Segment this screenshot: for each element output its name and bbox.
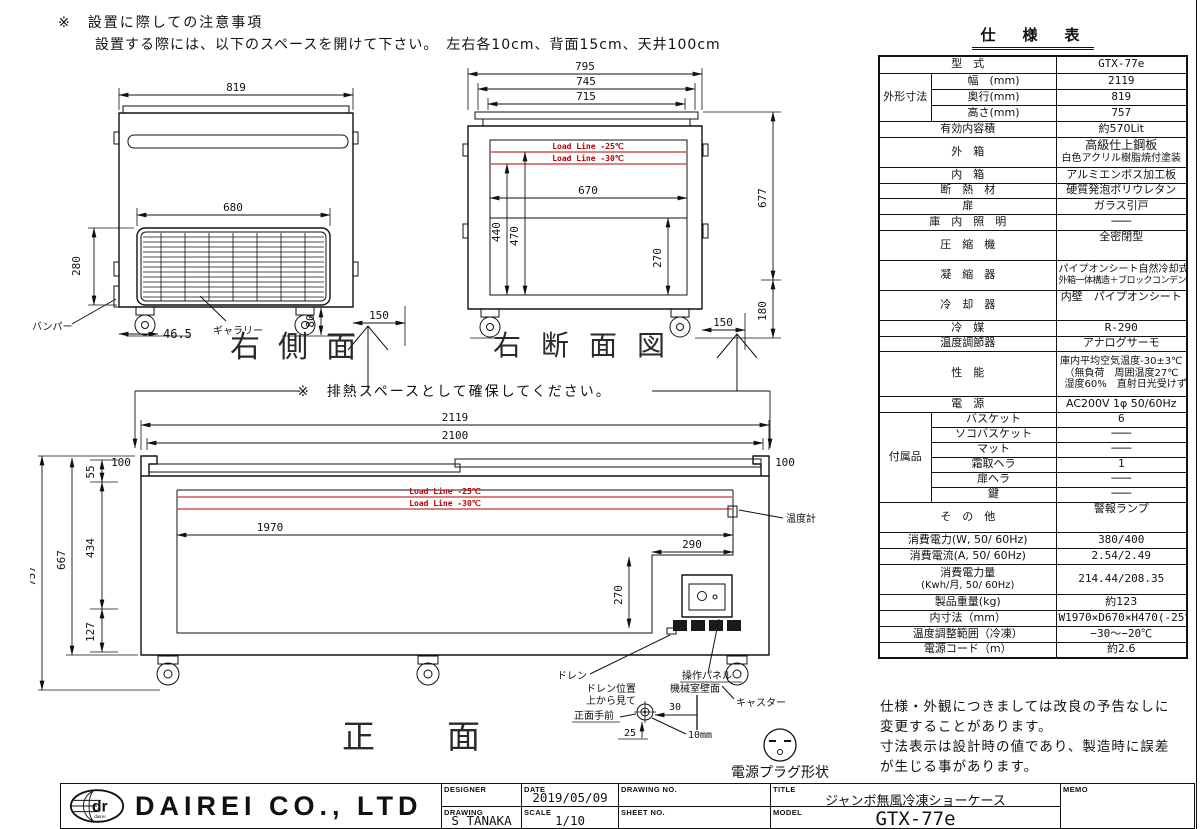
machine-wall-label: 機械室壁面 — [670, 682, 720, 695]
dim-670-label: 670 — [578, 184, 598, 197]
title-value: ジャンボ無風冷凍ショーケース — [771, 790, 1060, 806]
sheet-no-cell: SHEET NO. — [618, 806, 770, 828]
spec-table-title: 仕 様 表 — [972, 24, 1093, 50]
spec-watt-value: 380/400 — [1056, 532, 1187, 548]
spec-weight-value: 約123 — [1056, 594, 1187, 610]
dim-757-label: 757 — [30, 566, 38, 586]
drain-position-detail: ドレン位置 上から見て 正面手前 機械室壁面 30 25 10mm — [572, 682, 720, 741]
dim-1970-label: 1970 — [257, 521, 284, 534]
spec-accessories-label: 付属品 — [879, 412, 931, 502]
spec-weight-label: 製品重量(kg) — [879, 594, 1056, 610]
drawing-cell: DRAWINGS TANAKA — [441, 806, 521, 828]
dim-434-label: 434 — [84, 538, 97, 558]
dim-55-label: 55 — [84, 465, 97, 478]
model-value: GTX-77e — [771, 808, 1060, 828]
control-panel — [673, 575, 741, 631]
dim-10mm-label: 10mm — [688, 730, 712, 741]
dim-270-front-label: 270 — [612, 585, 625, 605]
installation-note-title: ※ 設置に際しての注意事項 — [58, 12, 263, 32]
load-line-30-label: Load Line -30℃ — [552, 153, 624, 163]
spec-capacity-value: 約570Lit — [1056, 121, 1187, 137]
date-label: DATE — [524, 785, 545, 794]
dim-440-label: 440 — [490, 222, 503, 242]
spec-inner-dims-label: 内寸法（mm） — [879, 610, 1056, 626]
dim-150-section-label: 150 — [713, 316, 733, 329]
disclaimer-line1: 仕様・外観につきましては改良の予告なしに — [880, 697, 1200, 717]
dim-150-rear-label: 150 — [369, 309, 389, 322]
spec-other-label: そ の 他 — [879, 502, 1056, 532]
memo-cell: MEMO — [1060, 784, 1194, 828]
spec-thermostat-value: アナログサーモ — [1056, 336, 1187, 351]
sheet-no-label: SHEET NO. — [621, 808, 665, 817]
spec-compressor-value: 全密閉型 — [1056, 230, 1187, 260]
spec-width-label: 幅 (mm) — [931, 73, 1056, 89]
dim-2100-label: 2100 — [442, 429, 469, 442]
title-label: TITLE — [773, 785, 796, 794]
dim-290-label: 290 — [682, 538, 702, 551]
spec-key-label: 鍵 — [931, 487, 1056, 502]
spec-cord-label: 電源コード（m） — [879, 642, 1056, 658]
dim-100-left-label: 100 — [111, 456, 131, 469]
dim-25-label: 25 — [624, 728, 636, 739]
spec-mat-value: ─── — [1056, 442, 1187, 457]
caster-label: キャスター — [736, 697, 786, 709]
dim-2119-label: 2119 — [442, 411, 469, 424]
spec-light-label: 庫 内 照 明 — [879, 214, 1056, 230]
dim-819-label: 819 — [226, 81, 246, 94]
drain-pos-line3: 正面手前 — [574, 709, 614, 722]
power-plug-shape: 電源プラグ形状 — [731, 729, 829, 781]
spec-table-area: 仕 様 表 型 式GTX-77e 外形寸法幅 (mm)2119 奥行(mm)81… — [878, 24, 1188, 659]
load-line-25-label: Load Line -25℃ — [552, 141, 624, 151]
dim-680-label: 680 — [223, 201, 243, 214]
spec-dims-label: 外形寸法 — [879, 73, 931, 121]
spec-thermostat-label: 温度調節器 — [879, 336, 1056, 351]
designer-cell: DESIGNER — [441, 784, 521, 806]
spec-compressor-label: 圧 縮 機 — [879, 230, 1056, 260]
dim-745-label: 745 — [576, 75, 596, 88]
spec-insulation-label: 断 熱 材 — [879, 183, 1056, 198]
side-view-callouts: バンパー ギャラリー — [32, 296, 263, 337]
spec-height-label: 高さ(mm) — [931, 105, 1056, 121]
spec-kwh-value: 214.44/208.35 — [1056, 564, 1187, 594]
dim-677-label: 677 — [756, 188, 769, 208]
spec-door-label: 扉 — [879, 198, 1056, 214]
dim-280-label: 280 — [70, 256, 83, 276]
spec-refrigerant-label: 冷 媒 — [879, 320, 1056, 336]
spec-outer-value: 高級仕上鋼板白色アクリル樹脂焼付塗装 — [1056, 137, 1187, 167]
title-block: dr dairei DAIREI CO., LTD DESIGNER DATE2… — [60, 783, 1195, 829]
dim-30-label: 30 — [669, 702, 681, 713]
spec-insulation-value: 硬質発泡ポリウレタン — [1056, 183, 1187, 198]
dim-46-5-label: 46.5 — [163, 327, 192, 341]
view-title-front: 正面 — [342, 710, 552, 758]
spec-capacity-label: 有効内容積 — [879, 121, 1056, 137]
spec-cooler-value: 内壁 パイプオンシート — [1056, 290, 1187, 320]
section-load-lines: Load Line -25℃ Load Line -30℃ — [491, 141, 686, 164]
bumper-label: バンパー — [32, 321, 73, 333]
thermometer-label: 温度計 — [786, 512, 816, 525]
scale-cell: SCALE1/10 — [521, 806, 618, 828]
front-casters — [157, 656, 748, 685]
company-cell: dr dairei DAIREI CO., LTD — [61, 784, 441, 828]
spec-temp-range-label: 温度調整範囲（冷凍） — [879, 626, 1056, 642]
logo-dr-text: dr — [92, 799, 108, 816]
dim-795-label: 795 — [575, 60, 595, 73]
dim-270-label: 270 — [651, 248, 664, 268]
model-cell: MODELGTX-77e — [770, 806, 1060, 828]
drawing-label: DRAWING — [444, 808, 483, 817]
spec-inner-dims-value: W1970×D670×H470(-25℃) — [1056, 610, 1187, 626]
spec-refrigerant-value: R-290 — [1056, 320, 1187, 336]
dim-100-right-label: 100 — [775, 456, 795, 469]
sheet-frame-right — [1196, 0, 1197, 829]
spec-cord-value: 約2.6 — [1056, 642, 1187, 658]
heat-space-note: ※ 排熱スペースとして確保してください。 — [297, 381, 612, 401]
dim-180-label: 180 — [756, 301, 769, 321]
installation-note-body: 設置する際には、以下のスペースを開けて下さい。 左右各10cm、背面15cm、天… — [95, 34, 721, 54]
front-callouts: 温度計 ドレン 操作パネル キャスター — [557, 506, 816, 709]
disclaimer-note: 仕様・外観につきましては改良の予告なしに 変更することがあります。 寸法表示は設… — [880, 697, 1200, 777]
logo-dairei-text: dairei — [94, 814, 105, 819]
model-label: MODEL — [773, 808, 802, 817]
spec-mat-label: マット — [931, 442, 1056, 457]
spec-scraper-label: 霜取ヘラ — [931, 457, 1056, 472]
side-view-grille — [137, 228, 330, 305]
spec-cooler-label: 冷 却 器 — [879, 290, 1056, 320]
company-name: DAIREI CO., LTD — [135, 791, 423, 822]
dairei-logo: dr dairei — [69, 787, 125, 825]
spec-outer-label: 外 箱 — [879, 137, 1056, 167]
drain-label: ドレン — [557, 671, 587, 682]
spec-bottom-basket-value: ─── — [1056, 427, 1187, 442]
scale-label: SCALE — [524, 808, 551, 817]
view-title-right-side: 右側面 — [230, 322, 374, 366]
spec-depth-label: 奥行(mm) — [931, 89, 1056, 105]
spec-inner-label: 内 箱 — [879, 167, 1056, 183]
drawing-no-cell: DRAWING NO. — [618, 784, 770, 806]
disclaimer-line3: 寸法表示は設計時の値であり、製造時に誤差 — [880, 737, 1200, 757]
spec-power-label: 電 源 — [879, 396, 1056, 412]
view-title-right-section: 右断面図 — [493, 324, 685, 364]
spec-condenser-label: 凝 縮 器 — [879, 260, 1056, 290]
spec-condenser-value: パイプオンシート自然冷却式外箱一体構造＋ブロックコンデンサー — [1056, 260, 1187, 290]
designer-label: DESIGNER — [444, 785, 486, 794]
spec-width-value: 2119 — [1056, 73, 1187, 89]
date-cell: DATE2019/05/09 — [521, 784, 618, 806]
drain-pos-line2: 上から見て — [586, 695, 636, 707]
spec-model-value: GTX-77e — [1056, 56, 1187, 73]
title-cell: TITLEジャンボ無風冷凍ショーケース — [770, 784, 1060, 806]
dim-715-label: 715 — [576, 90, 596, 103]
spec-amp-value: 2.54/2.49 — [1056, 548, 1187, 564]
spec-other-value: 警報ランプ — [1056, 502, 1187, 532]
dim-667-label: 667 — [55, 550, 68, 570]
front-load-line-25-label: Load Line -25℃ — [409, 486, 481, 496]
spec-watt-label: 消費電力(W, 50/ 60Hz) — [879, 532, 1056, 548]
spec-model-label: 型 式 — [879, 56, 1056, 73]
spec-power-value: AC200V 1φ 50/60Hz — [1056, 396, 1187, 412]
spec-light-value: ─── — [1056, 214, 1187, 230]
plug-shape-label: 電源プラグ形状 — [731, 765, 829, 781]
spec-kwh-label: 消費電力量(Kwh/月, 50/ 60Hz) — [879, 564, 1056, 594]
spec-basket-value: 6 — [1056, 412, 1187, 427]
spec-door-scraper-label: 扉ヘラ — [931, 472, 1056, 487]
panel-label: 操作パネル — [682, 669, 732, 682]
drain-pos-line1: ドレン位置 — [586, 682, 636, 695]
disclaimer-line4: が生じる事があります。 — [880, 757, 1200, 777]
spec-bottom-basket-label: ソコバスケット — [931, 427, 1056, 442]
memo-label: MEMO — [1063, 785, 1088, 794]
spec-door-value: ガラス引戸 — [1056, 198, 1187, 214]
spec-depth-value: 819 — [1056, 89, 1187, 105]
spec-table: 型 式GTX-77e 外形寸法幅 (mm)2119 奥行(mm)819 高さ(m… — [878, 55, 1188, 659]
spec-temp-range-value: −30〜−20℃ — [1056, 626, 1187, 642]
spec-performance-label: 性 能 — [879, 351, 1056, 396]
disclaimer-line2: 変更することがあります。 — [880, 717, 1200, 737]
spec-amp-label: 消費電流(A, 50/ 60Hz) — [879, 548, 1056, 564]
spec-height-value: 757 — [1056, 105, 1187, 121]
dim-127-label: 127 — [84, 622, 97, 642]
front-load-lines: Load Line -25℃ Load Line -30℃ — [178, 486, 732, 509]
spec-key-value: ─── — [1056, 487, 1187, 502]
drawing-no-label: DRAWING NO. — [621, 785, 677, 794]
front-load-line-30-label: Load Line -30℃ — [409, 498, 481, 508]
spec-door-scraper-value: ─── — [1056, 472, 1187, 487]
dim-470-label: 470 — [508, 226, 521, 246]
spec-performance-value: 庫内平均空気温度-30±3℃（無負荷 周囲温度27℃湿度60% 直射日光受けず） — [1056, 351, 1187, 396]
spec-scraper-value: 1 — [1056, 457, 1187, 472]
spec-basket-label: バスケット — [931, 412, 1056, 427]
spec-inner-value: アルミエンボス加工板 — [1056, 167, 1187, 183]
